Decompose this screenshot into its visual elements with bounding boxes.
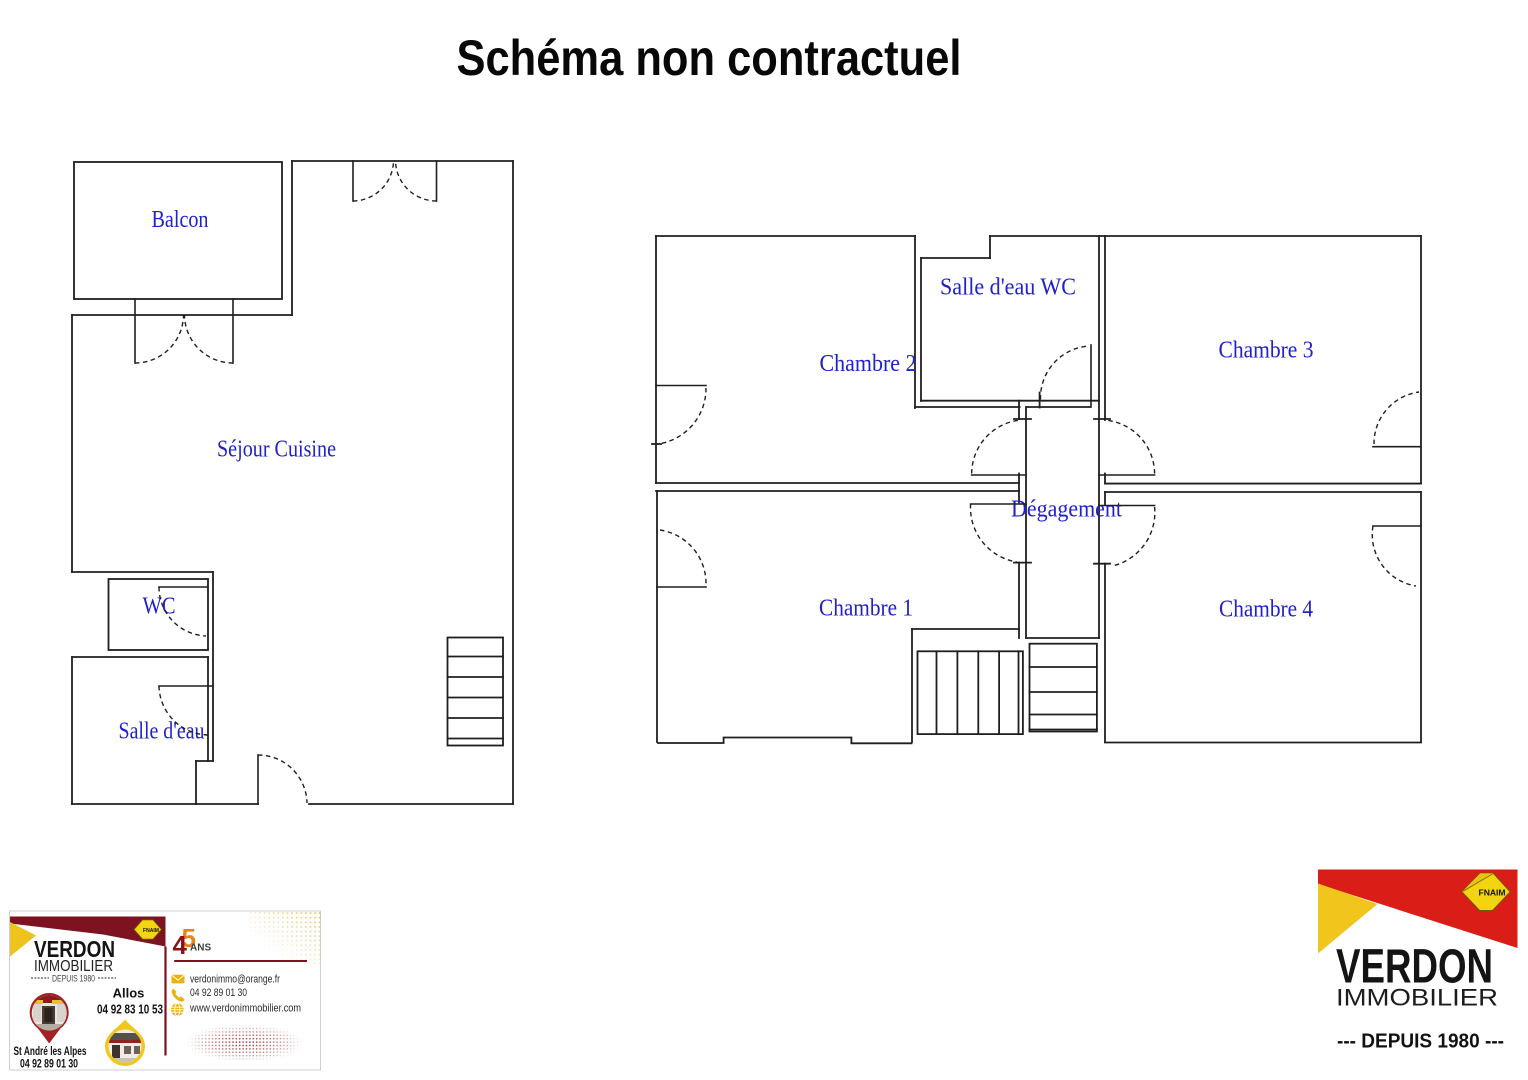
svg-text:Allos: Allos (113, 986, 145, 1001)
svg-text:DEPUIS 1980: DEPUIS 1980 (52, 974, 95, 984)
svg-text:ANS: ANS (190, 943, 211, 954)
svg-text:Séjour Cuisine: Séjour Cuisine (217, 437, 336, 463)
svg-text:04 92 83 10 53: 04 92 83 10 53 (97, 1002, 163, 1017)
svg-text:Chambre 3: Chambre 3 (1219, 338, 1314, 364)
svg-text:Salle d'eau WC: Salle d'eau WC (940, 275, 1076, 301)
svg-text:IMMOBILIER: IMMOBILIER (1336, 985, 1498, 1012)
svg-text:4: 4 (173, 930, 188, 960)
svg-text:04 92 89 01 30: 04 92 89 01 30 (190, 987, 247, 999)
svg-text:Chambre 1: Chambre 1 (819, 596, 913, 622)
svg-text:WC: WC (143, 594, 176, 620)
svg-text:www.verdonimmobilier.com: www.verdonimmobilier.com (189, 1003, 301, 1015)
svg-text:04 92 89 01 30: 04 92 89 01 30 (20, 1057, 78, 1071)
svg-text:--- DEPUIS 1980 ---: --- DEPUIS 1980 --- (1337, 1031, 1504, 1053)
svg-text:FNAIM: FNAIM (1479, 889, 1506, 898)
svg-text:Schéma non contractuel: Schéma non contractuel (457, 30, 962, 86)
svg-text:verdonimmo@orange.fr: verdonimmo@orange.fr (190, 974, 280, 986)
svg-text:FNAIM: FNAIM (143, 928, 159, 934)
svg-text:Balcon: Balcon (152, 207, 209, 233)
svg-text:IMMOBILIER: IMMOBILIER (34, 958, 113, 975)
svg-text:Chambre 4: Chambre 4 (1219, 597, 1313, 623)
svg-text:Chambre 2: Chambre 2 (820, 351, 917, 377)
